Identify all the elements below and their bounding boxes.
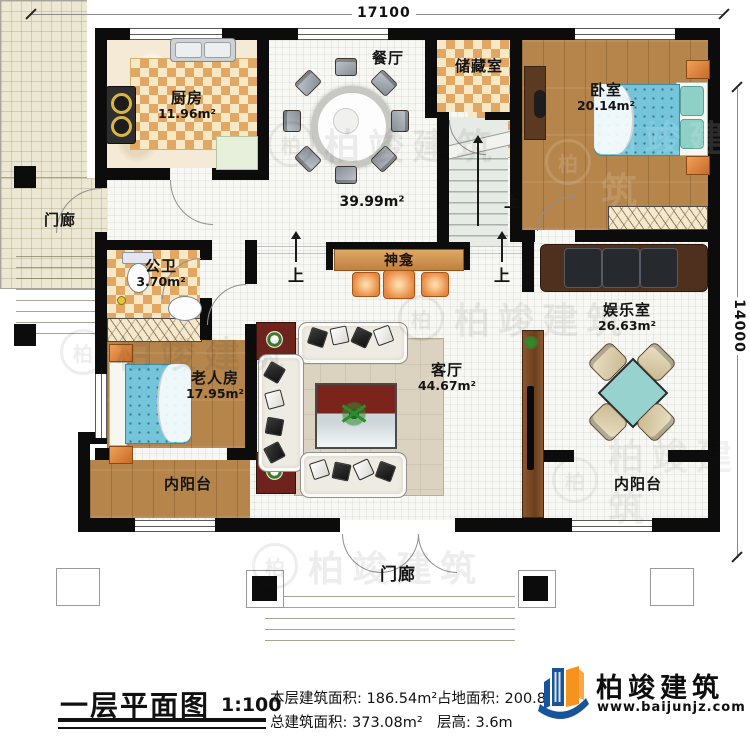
wall-outer-bottom — [78, 518, 135, 532]
shrine-chair — [421, 272, 449, 297]
room-label-kitchen: 厨房11.96m² — [158, 90, 216, 122]
stat-land-area: 占地面积: 200.8 — [437, 687, 546, 708]
room-label-bath: 公卫3.70m² — [136, 258, 185, 290]
nightstand — [109, 344, 133, 362]
level-up-label: 上 — [288, 262, 304, 286]
column — [252, 576, 277, 601]
shrine-label: 神龛 — [384, 250, 414, 270]
game-sofa-cushion — [640, 248, 678, 288]
porch-left-floor — [0, 0, 87, 178]
faucet — [117, 296, 126, 305]
stat-floor-area: 本层建筑面积: 186.54m² — [270, 687, 437, 708]
wall-elder-balcony — [227, 448, 257, 460]
porch-bottom-steps — [265, 596, 515, 642]
bath-wardrobe — [107, 318, 202, 342]
column — [14, 166, 36, 188]
tv-screen — [527, 386, 534, 470]
sofa-pillow — [265, 417, 285, 437]
brand-url: www.baijunjz.com — [597, 700, 746, 715]
level-arrow-head — [497, 226, 507, 239]
brand-logo-icon — [538, 660, 590, 724]
column — [14, 324, 36, 346]
shrine-bracket — [326, 242, 333, 270]
window — [575, 28, 675, 40]
dining-chair — [335, 58, 357, 76]
game-sofa-cushion — [564, 248, 602, 288]
window — [135, 520, 215, 532]
window — [572, 520, 652, 532]
stat-total-area: 总建筑面积: 373.08m² — [270, 711, 423, 732]
stair-up-label: 上 — [504, 188, 520, 212]
title-rule — [58, 727, 266, 729]
wall-kitchen-bottom — [95, 168, 170, 180]
sofa-pillow — [329, 325, 349, 345]
side-table-plant — [266, 331, 283, 348]
bedroom-desk-chair — [534, 90, 546, 118]
bath-sink — [168, 296, 202, 321]
wall-bedroom-bottom — [510, 230, 535, 242]
bed-pillow — [680, 86, 704, 116]
shrine-bracket — [463, 242, 470, 270]
dim-label-right: 14000 — [731, 297, 747, 355]
window — [95, 374, 107, 438]
room-label-balcony-right: 内阳台 — [614, 476, 662, 493]
room-label-dining: 餐厅 — [372, 50, 404, 67]
kitchen-sink-basin — [175, 42, 202, 58]
dining-table-center — [333, 108, 359, 134]
shrine-bracket — [326, 242, 470, 249]
nightstand — [109, 446, 133, 464]
game-sofa-cushion — [602, 248, 640, 288]
bedroom-wardrobe — [608, 206, 708, 230]
wall-bedroom-bottom — [575, 230, 720, 242]
floorplan-canvas: 神龛 上 上 上 — [0, 0, 750, 736]
room-label-game: 娱乐室26.63m² — [598, 302, 656, 334]
nightstand — [686, 156, 710, 175]
room-label-balcony-left: 内阳台 — [164, 476, 212, 493]
wall-game-left-upper — [522, 242, 534, 292]
dining-chair — [335, 166, 357, 184]
wall-outer-bottom — [652, 518, 720, 532]
wall-stair-left — [437, 112, 449, 247]
wall-corridor-right — [245, 240, 257, 284]
fridge — [216, 136, 258, 170]
tv-plant — [524, 336, 538, 349]
burner-icon — [111, 93, 132, 114]
window — [298, 28, 388, 40]
side-step — [650, 568, 694, 606]
wall-bath-top — [107, 240, 212, 250]
stat-floor-height: 层高: 3.6m — [437, 711, 513, 732]
room-label-elder: 老人房17.95m² — [186, 370, 244, 402]
level-arrow-line — [501, 236, 503, 262]
kitchen-sink-basin — [204, 42, 231, 58]
wall-dining-storage — [425, 28, 437, 118]
room-label-hall-area: 39.99m² — [339, 194, 404, 210]
wall-balcony-left — [78, 432, 90, 530]
wall-outer-right — [708, 28, 720, 532]
level-arrow-line — [295, 236, 297, 262]
shrine-table: 神龛 — [334, 249, 464, 271]
wall-balcony-right-top — [668, 450, 708, 462]
burner-icon — [111, 116, 132, 137]
dim-label-top: 17100 — [352, 5, 416, 21]
bed-pillow — [680, 119, 704, 149]
shrine-chair — [383, 270, 415, 299]
wall-kitchen-right — [257, 28, 269, 180]
wall-outer-bottom — [215, 518, 340, 532]
dining-chair — [391, 110, 409, 132]
sofa-pillow — [331, 461, 351, 481]
wall-bath-right — [200, 240, 212, 260]
room-label-porch-bottom: 门廊 — [380, 566, 416, 586]
room-label-living: 客厅44.67m² — [418, 362, 476, 394]
room-label-porch-left: 门廊 — [44, 212, 76, 229]
title-rule — [58, 718, 266, 722]
stair-arrow-line — [477, 140, 479, 226]
side-step — [56, 568, 100, 606]
column — [523, 576, 548, 601]
level-arrow-head — [291, 226, 301, 239]
level-up-label: 上 — [494, 262, 510, 286]
wall-outer-bottom — [455, 518, 572, 532]
stair-arrow-head — [473, 130, 483, 143]
room-label-storage: 储藏室 — [455, 58, 503, 75]
dining-chair — [283, 110, 301, 132]
shrine-chair — [352, 272, 380, 297]
nightstand — [686, 60, 710, 79]
door-arc-entry — [342, 534, 381, 573]
door-arc-entry — [418, 534, 457, 573]
room-label-bedroom: 卧室20.14m² — [577, 82, 635, 114]
